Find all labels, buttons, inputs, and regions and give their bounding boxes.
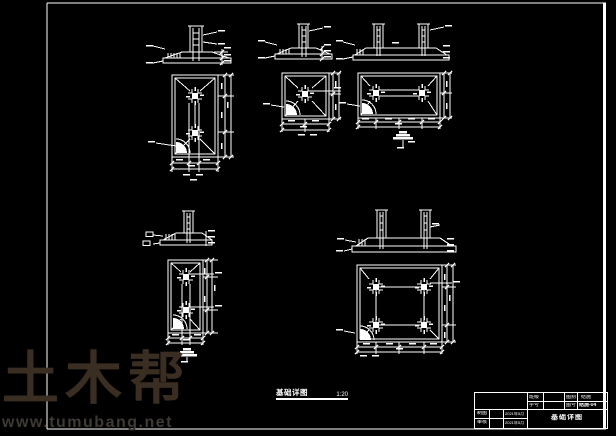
detail-e-section (336, 210, 456, 252)
number-label: 图号 (566, 403, 577, 408)
divider (527, 393, 528, 428)
watermark-url: www.tumubang.net (2, 414, 202, 432)
detail-c-plan (339, 71, 452, 149)
drawing-label: 基础详图 1:20 (276, 386, 348, 400)
drawing-label-scale: 1:20 (336, 392, 348, 398)
class-label: 班级 (529, 395, 543, 400)
draft-label: 制图 (477, 411, 489, 416)
draft-date: 2021年5月 (505, 412, 527, 416)
watermark-brand-logo: 土木帮 (2, 350, 202, 410)
detail-b-section (258, 24, 332, 61)
detail-b-plan (263, 71, 341, 136)
title-block: 班级 图别 结施 学号 图号 结施-04 制图 2021年5月 审核 2021年… (474, 392, 608, 429)
cad-sheet-viewport: 基础详图 1:20 班级 图别 结施 学号 图号 结施-04 制图 2021年5… (0, 0, 616, 436)
detail-d-section (143, 211, 215, 246)
detail-a-plan (148, 73, 234, 181)
detail-c-section (336, 24, 452, 60)
divider (527, 401, 607, 402)
number-value: 结施-04 (579, 403, 606, 408)
student-label: 学号 (529, 403, 543, 408)
divider (475, 418, 527, 419)
category-value: 结施 (581, 395, 606, 400)
detail-e-plan (336, 263, 460, 357)
review-label: 审核 (477, 420, 489, 425)
divider (475, 409, 607, 410)
category-label: 图别 (566, 395, 577, 400)
title-block-drawing-title: 基础详图 (527, 414, 607, 421)
review-date: 2021年5月 (505, 421, 527, 425)
detail-a-section (146, 26, 231, 65)
drawing-label-title: 基础详图 (276, 387, 308, 398)
